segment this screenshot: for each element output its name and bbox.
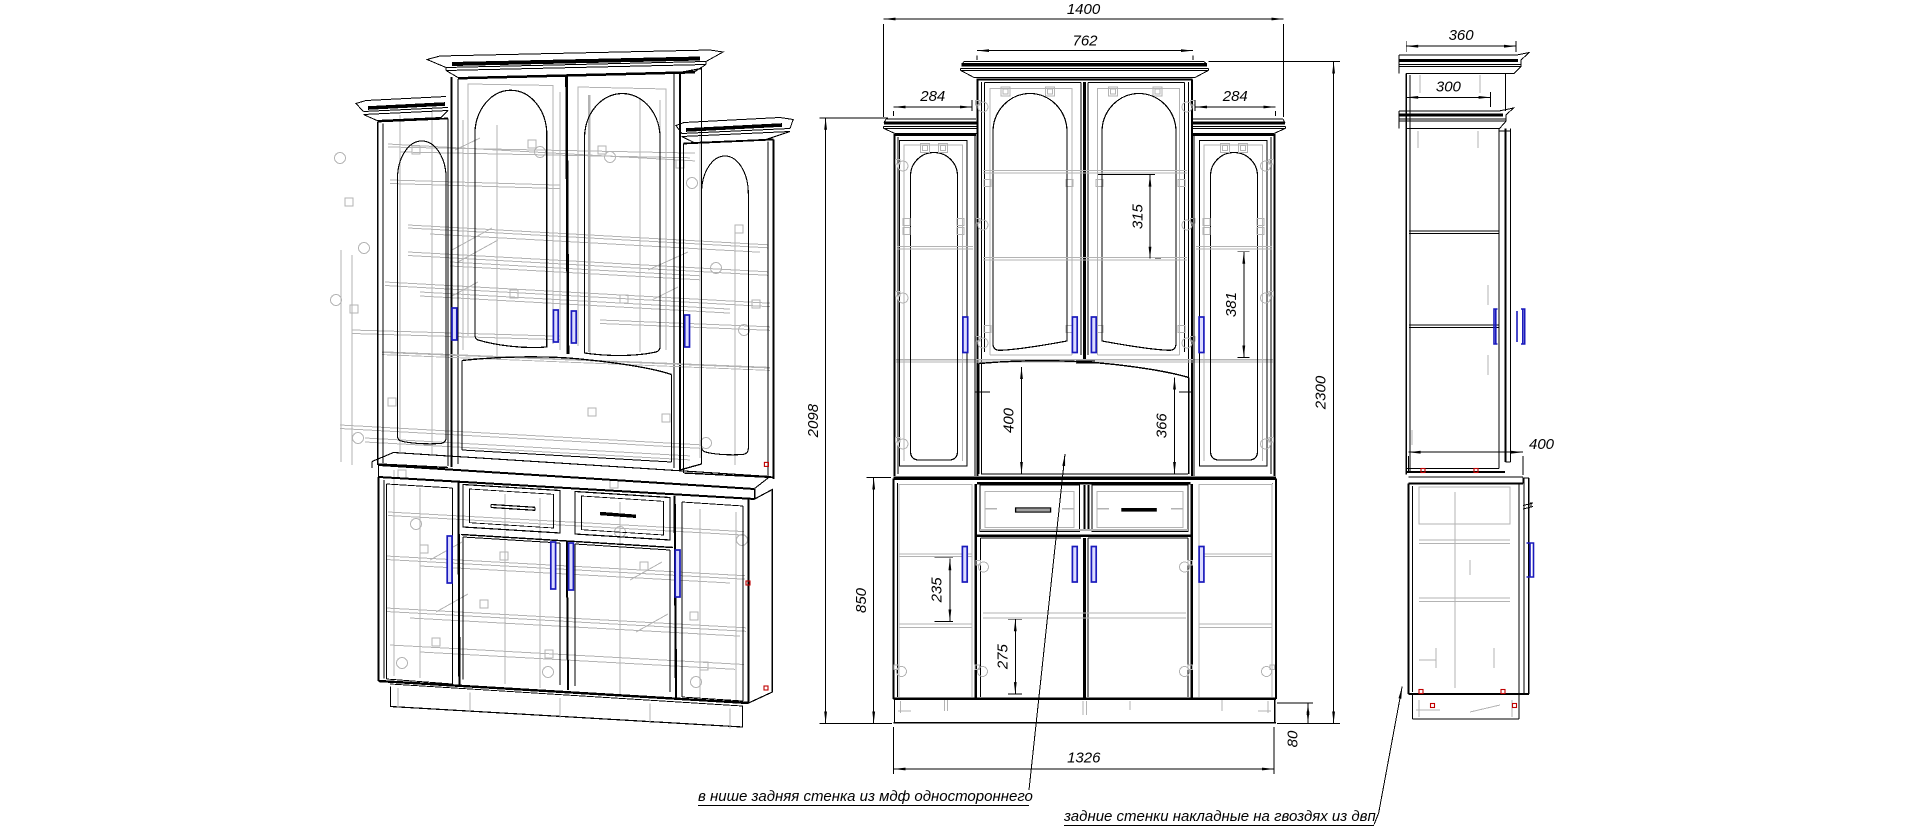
svg-text:2098: 2098 [805, 403, 822, 438]
svg-text:850: 850 [853, 587, 870, 613]
svg-text:400: 400 [1529, 436, 1555, 453]
svg-text:315: 315 [1130, 203, 1147, 229]
svg-text:1400: 1400 [1067, 1, 1101, 18]
svg-text:275: 275 [995, 643, 1012, 670]
svg-text:в нише задняя стенка из мдф од: в нише задняя стенка из мдф односторонне… [698, 788, 1033, 805]
svg-text:284: 284 [919, 88, 945, 105]
svg-text:360: 360 [1449, 27, 1475, 44]
svg-text:284: 284 [1222, 88, 1248, 105]
svg-text:366: 366 [1154, 413, 1171, 439]
svg-text:300: 300 [1436, 79, 1462, 96]
svg-text:1326: 1326 [1067, 750, 1101, 767]
svg-text:2300: 2300 [1313, 375, 1330, 410]
svg-text:400: 400 [1001, 407, 1018, 433]
svg-text:80: 80 [1285, 730, 1302, 747]
svg-text:задние стенки накладные на гво: задние стенки накладные на гвоздях из дв… [1063, 808, 1376, 825]
svg-text:235: 235 [929, 577, 946, 604]
svg-text:381: 381 [1223, 292, 1240, 317]
svg-text:762: 762 [1072, 33, 1098, 50]
